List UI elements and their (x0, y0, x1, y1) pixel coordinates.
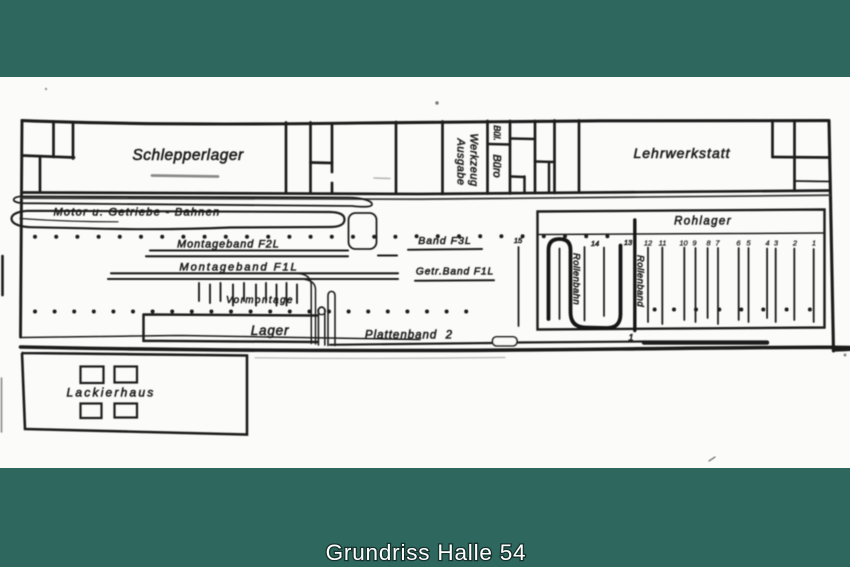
svg-text:Vormontage: Vormontage (226, 295, 294, 306)
svg-text:4: 4 (765, 239, 769, 248)
svg-text:Lehrwerkstatt: Lehrwerkstatt (633, 145, 730, 161)
svg-text:13: 13 (624, 238, 633, 247)
svg-text:Werkzeug: Werkzeug (468, 133, 480, 187)
svg-text:Bül.: Bül. (492, 125, 502, 141)
svg-text:Montageband F2L: Montageband F2L (177, 239, 280, 251)
svg-text:10: 10 (679, 239, 688, 248)
svg-text:Plattenband 2: Plattenband 2 (365, 330, 453, 342)
svg-text:Rollenband: Rollenband (635, 255, 646, 307)
svg-text:Montageband F1L: Montageband F1L (179, 262, 298, 274)
svg-text:12: 12 (644, 239, 653, 248)
svg-text:Ausgabe: Ausgabe (455, 138, 467, 186)
svg-text:Getr.Band F1L: Getr.Band F1L (416, 267, 494, 278)
svg-text:1: 1 (812, 239, 816, 248)
svg-text:Schlepperlager: Schlepperlager (132, 147, 244, 164)
svg-text:1: 1 (628, 333, 633, 344)
svg-text:Lackierhaus: Lackierhaus (67, 386, 156, 400)
svg-text:Motor u. Getriebe - Bahnen: Motor u. Getriebe - Bahnen (53, 207, 220, 219)
svg-text:Rohlager: Rohlager (674, 216, 732, 228)
svg-text:11: 11 (659, 239, 667, 248)
svg-text:Büro: Büro (491, 154, 503, 177)
svg-text:Band F3L: Band F3L (418, 235, 472, 247)
svg-text:2: 2 (792, 239, 798, 248)
svg-text:Rollenbahn: Rollenbahn (571, 253, 582, 305)
svg-text:Grundriss Halle 54: Grundriss Halle 54 (326, 540, 527, 565)
svg-text:15: 15 (514, 236, 523, 245)
svg-text:Lager: Lager (251, 323, 290, 338)
svg-text:14: 14 (591, 239, 599, 248)
